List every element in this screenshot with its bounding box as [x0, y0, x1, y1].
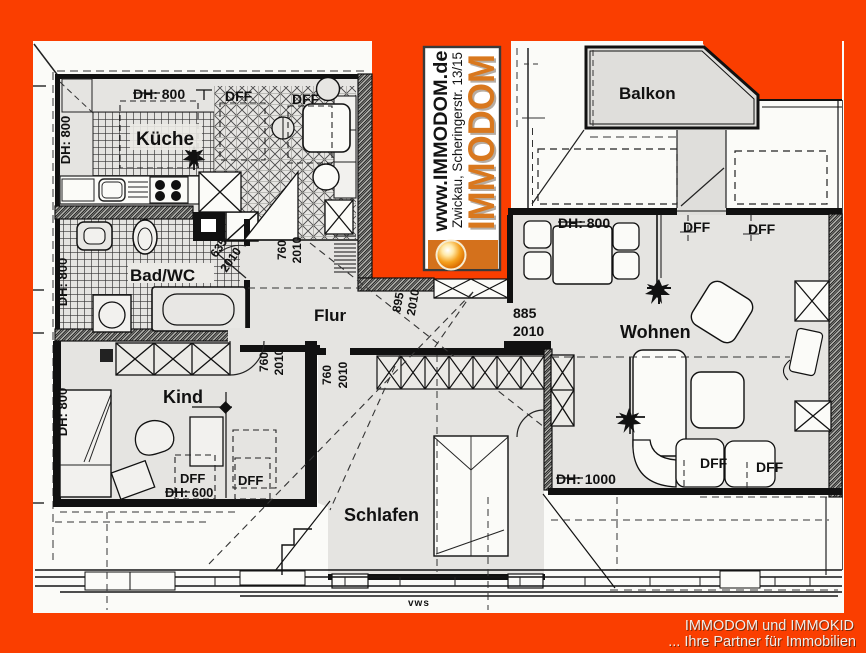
svg-text:Küche: Küche: [136, 129, 194, 150]
svg-text:DH: 800: DH: 800: [55, 388, 70, 436]
svg-text:DFF: DFF: [238, 473, 263, 488]
svg-text:IMMODOM und IMMOKID: IMMODOM und IMMOKID: [685, 618, 854, 634]
svg-text:www.IMMODOM.de: www.IMMODOM.de: [430, 50, 452, 232]
svg-text:DH: 800: DH: 800: [133, 86, 185, 102]
svg-text:IMMODOM: IMMODOM: [461, 54, 502, 230]
svg-text:Schlafen: Schlafen: [344, 505, 419, 525]
svg-text:2010: 2010: [272, 348, 286, 375]
svg-text:Bad/WC: Bad/WC: [130, 266, 195, 285]
svg-text:DFF: DFF: [292, 91, 320, 107]
svg-text:DFF: DFF: [225, 88, 253, 104]
svg-text:Balkon: Balkon: [619, 84, 676, 103]
svg-text:DH: 800: DH: 800: [55, 258, 70, 306]
svg-text:DFF: DFF: [683, 219, 711, 235]
svg-text:760: 760: [275, 240, 289, 260]
svg-text:2010: 2010: [336, 361, 350, 388]
svg-text:760: 760: [257, 352, 271, 372]
svg-text:DFF: DFF: [180, 471, 205, 486]
svg-text:vws: vws: [408, 598, 430, 609]
svg-text:Wohnen: Wohnen: [620, 322, 691, 342]
svg-text:760: 760: [320, 365, 334, 385]
svg-text:885: 885: [513, 305, 537, 321]
svg-text:DH: 800: DH: 800: [58, 116, 73, 164]
svg-text:DFF: DFF: [756, 459, 784, 475]
svg-text:DH: 800: DH: 800: [558, 215, 610, 231]
svg-text:Kind: Kind: [163, 387, 203, 407]
svg-text:2010: 2010: [513, 323, 544, 339]
svg-text:2010: 2010: [290, 236, 304, 263]
svg-text:DH: 1000: DH: 1000: [556, 471, 616, 487]
svg-text:DFF: DFF: [700, 455, 728, 471]
svg-text:DFF: DFF: [748, 221, 776, 237]
svg-text:Flur: Flur: [314, 306, 346, 325]
svg-text:... Ihre Partner für Immobilie: ... Ihre Partner für Immobilien: [668, 634, 856, 650]
